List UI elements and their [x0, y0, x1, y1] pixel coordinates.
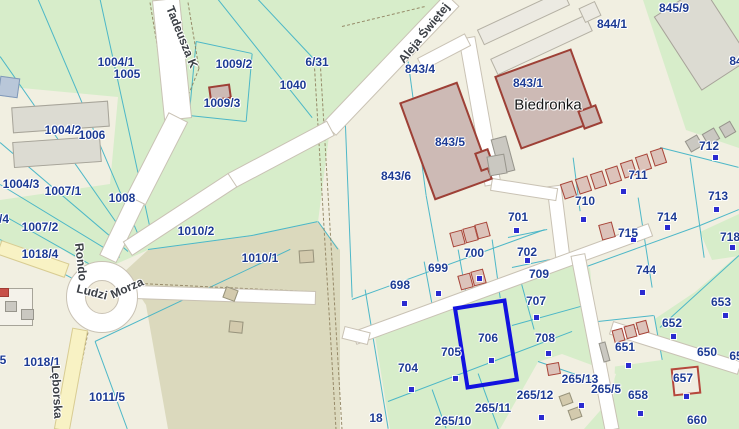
address-point-dot [514, 228, 519, 233]
parcel-label: 698 [390, 279, 410, 291]
building [298, 249, 314, 263]
building [486, 154, 507, 177]
address-point-dot [714, 207, 719, 212]
parcel-label: 701 [508, 211, 528, 223]
parcel-label: 1009/2 [216, 58, 253, 70]
parcel-label: 1009/3 [204, 97, 241, 109]
parcel-label: 1008 [109, 192, 136, 204]
building [5, 301, 17, 312]
street-name-label: Lęborska [50, 365, 65, 419]
building [0, 288, 9, 297]
address-point-dot [730, 245, 735, 250]
address-point-dot [626, 363, 631, 368]
address-point-dot [640, 290, 645, 295]
parcel-label: 5 [0, 354, 6, 366]
address-point-dot [453, 376, 458, 381]
garage-building [589, 170, 606, 189]
parcel-label: 6/31 [305, 56, 328, 68]
parcel-label: 699 [428, 262, 448, 274]
address-point-dot [402, 301, 407, 306]
parcel-label: 708 [535, 332, 555, 344]
parcel-label: 660 [687, 414, 707, 426]
map-canvas[interactable]: 1004/110051009/21009/31004/210061004/310… [0, 0, 739, 429]
address-point-dot [546, 351, 551, 356]
parcel-label: 700 [464, 247, 484, 259]
parcel-label: 843/6 [381, 170, 411, 182]
parcel-label: 84 [729, 55, 739, 67]
address-point-dot [684, 394, 689, 399]
parcel-label: 265/11 [475, 402, 511, 414]
parcel-label: 710 [575, 195, 595, 207]
parcel-label: 1010/1 [242, 252, 279, 264]
street-name-label: Rondo [73, 242, 89, 281]
parcel-boundary-line [689, 158, 704, 258]
parcel-label: 1007/2 [22, 221, 59, 233]
address-point-dot [477, 276, 482, 281]
parcel-label: 1004/3 [3, 178, 40, 190]
parcel-label: 709 [529, 268, 549, 280]
address-point-dot [409, 387, 414, 392]
parcel-label: 265/12 [517, 389, 554, 401]
parcel-label: 1006 [79, 129, 106, 141]
building [228, 320, 243, 333]
parcel-label: 843/1 [513, 77, 543, 89]
parcel-boundary-line [344, 118, 352, 298]
parcel-label: 1007/1 [45, 185, 82, 197]
parcel-label: 843/4 [405, 63, 435, 75]
parcel-label: 265/5 [591, 383, 621, 395]
parcel-label: 1040 [280, 79, 307, 91]
parcel-label: 1010/2 [178, 225, 215, 237]
parcel-label: /4 [0, 213, 9, 225]
parcel-label: 65 [729, 350, 739, 362]
garage-building [546, 362, 561, 376]
parcel-label: 1005 [114, 68, 141, 80]
parcel-label: 744 [636, 264, 656, 276]
parcel-label: 704 [398, 362, 418, 374]
address-point-dot [665, 225, 670, 230]
garage-building [649, 147, 666, 166]
parcel-label: 657 [673, 372, 693, 384]
parcel-label: 1004/2 [45, 124, 82, 136]
parcel-label: 712 [699, 140, 719, 152]
building [0, 76, 20, 99]
parcel-label: 843/5 [435, 136, 465, 148]
parcel-label: 705 [441, 346, 461, 358]
parcel-label: 658 [628, 389, 648, 401]
parcel-boundary-line [94, 342, 127, 429]
parcel-label: 702 [517, 246, 537, 258]
parcel-label: 718 [720, 231, 739, 243]
parcel-label: 714 [657, 211, 677, 223]
parcel-label: 652 [662, 317, 682, 329]
address-point-dot [638, 411, 643, 416]
parcel-label: 651 [615, 341, 635, 353]
parcel-boundary-line [425, 196, 438, 262]
address-point-dot [723, 313, 728, 318]
parcel-label: 1011/5 [89, 391, 125, 403]
parcel-label: 845/9 [659, 2, 689, 14]
address-point-dot [489, 358, 494, 363]
parcel-label: 650 [697, 346, 717, 358]
parcel-label: 706 [478, 332, 498, 344]
parcel-label: 1018/4 [22, 248, 59, 260]
poi-label-biedronka: Biedronka [514, 98, 582, 113]
address-point-dot [579, 403, 584, 408]
address-point-dot [671, 334, 676, 339]
parcel-label: 18 [369, 412, 382, 424]
parcel-label: 715 [618, 227, 638, 239]
address-point-dot [436, 291, 441, 296]
address-point-dot [621, 189, 626, 194]
building [21, 309, 34, 320]
address-point-dot [581, 217, 586, 222]
address-point-dot [539, 415, 544, 420]
parcel-label: 707 [526, 295, 546, 307]
address-point-dot [713, 155, 718, 160]
address-point-dot [534, 315, 539, 320]
garage-building [604, 165, 621, 184]
parcel-label: 653 [711, 296, 731, 308]
parcel-label: 711 [628, 169, 647, 181]
parcel-label: 844/1 [597, 18, 627, 30]
parcel-label: 713 [708, 190, 728, 202]
parcel-label: 265/10 [435, 415, 472, 427]
road-white [491, 179, 557, 200]
